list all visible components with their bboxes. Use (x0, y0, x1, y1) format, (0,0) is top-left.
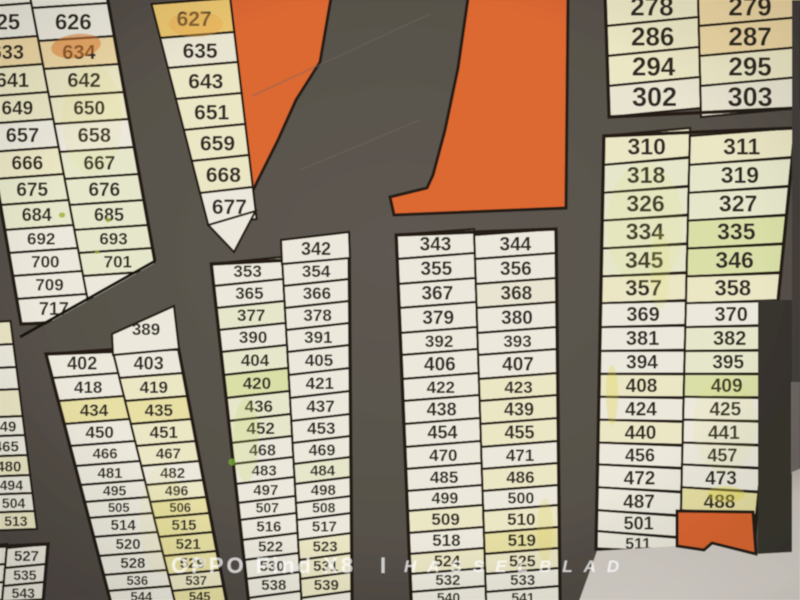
svg-text:OPPO Find X8: OPPO Find X8 (171, 553, 356, 578)
svg-text:I: I (380, 553, 386, 578)
svg-text:HASSELBLAD: HASSELBLAD (404, 557, 630, 576)
